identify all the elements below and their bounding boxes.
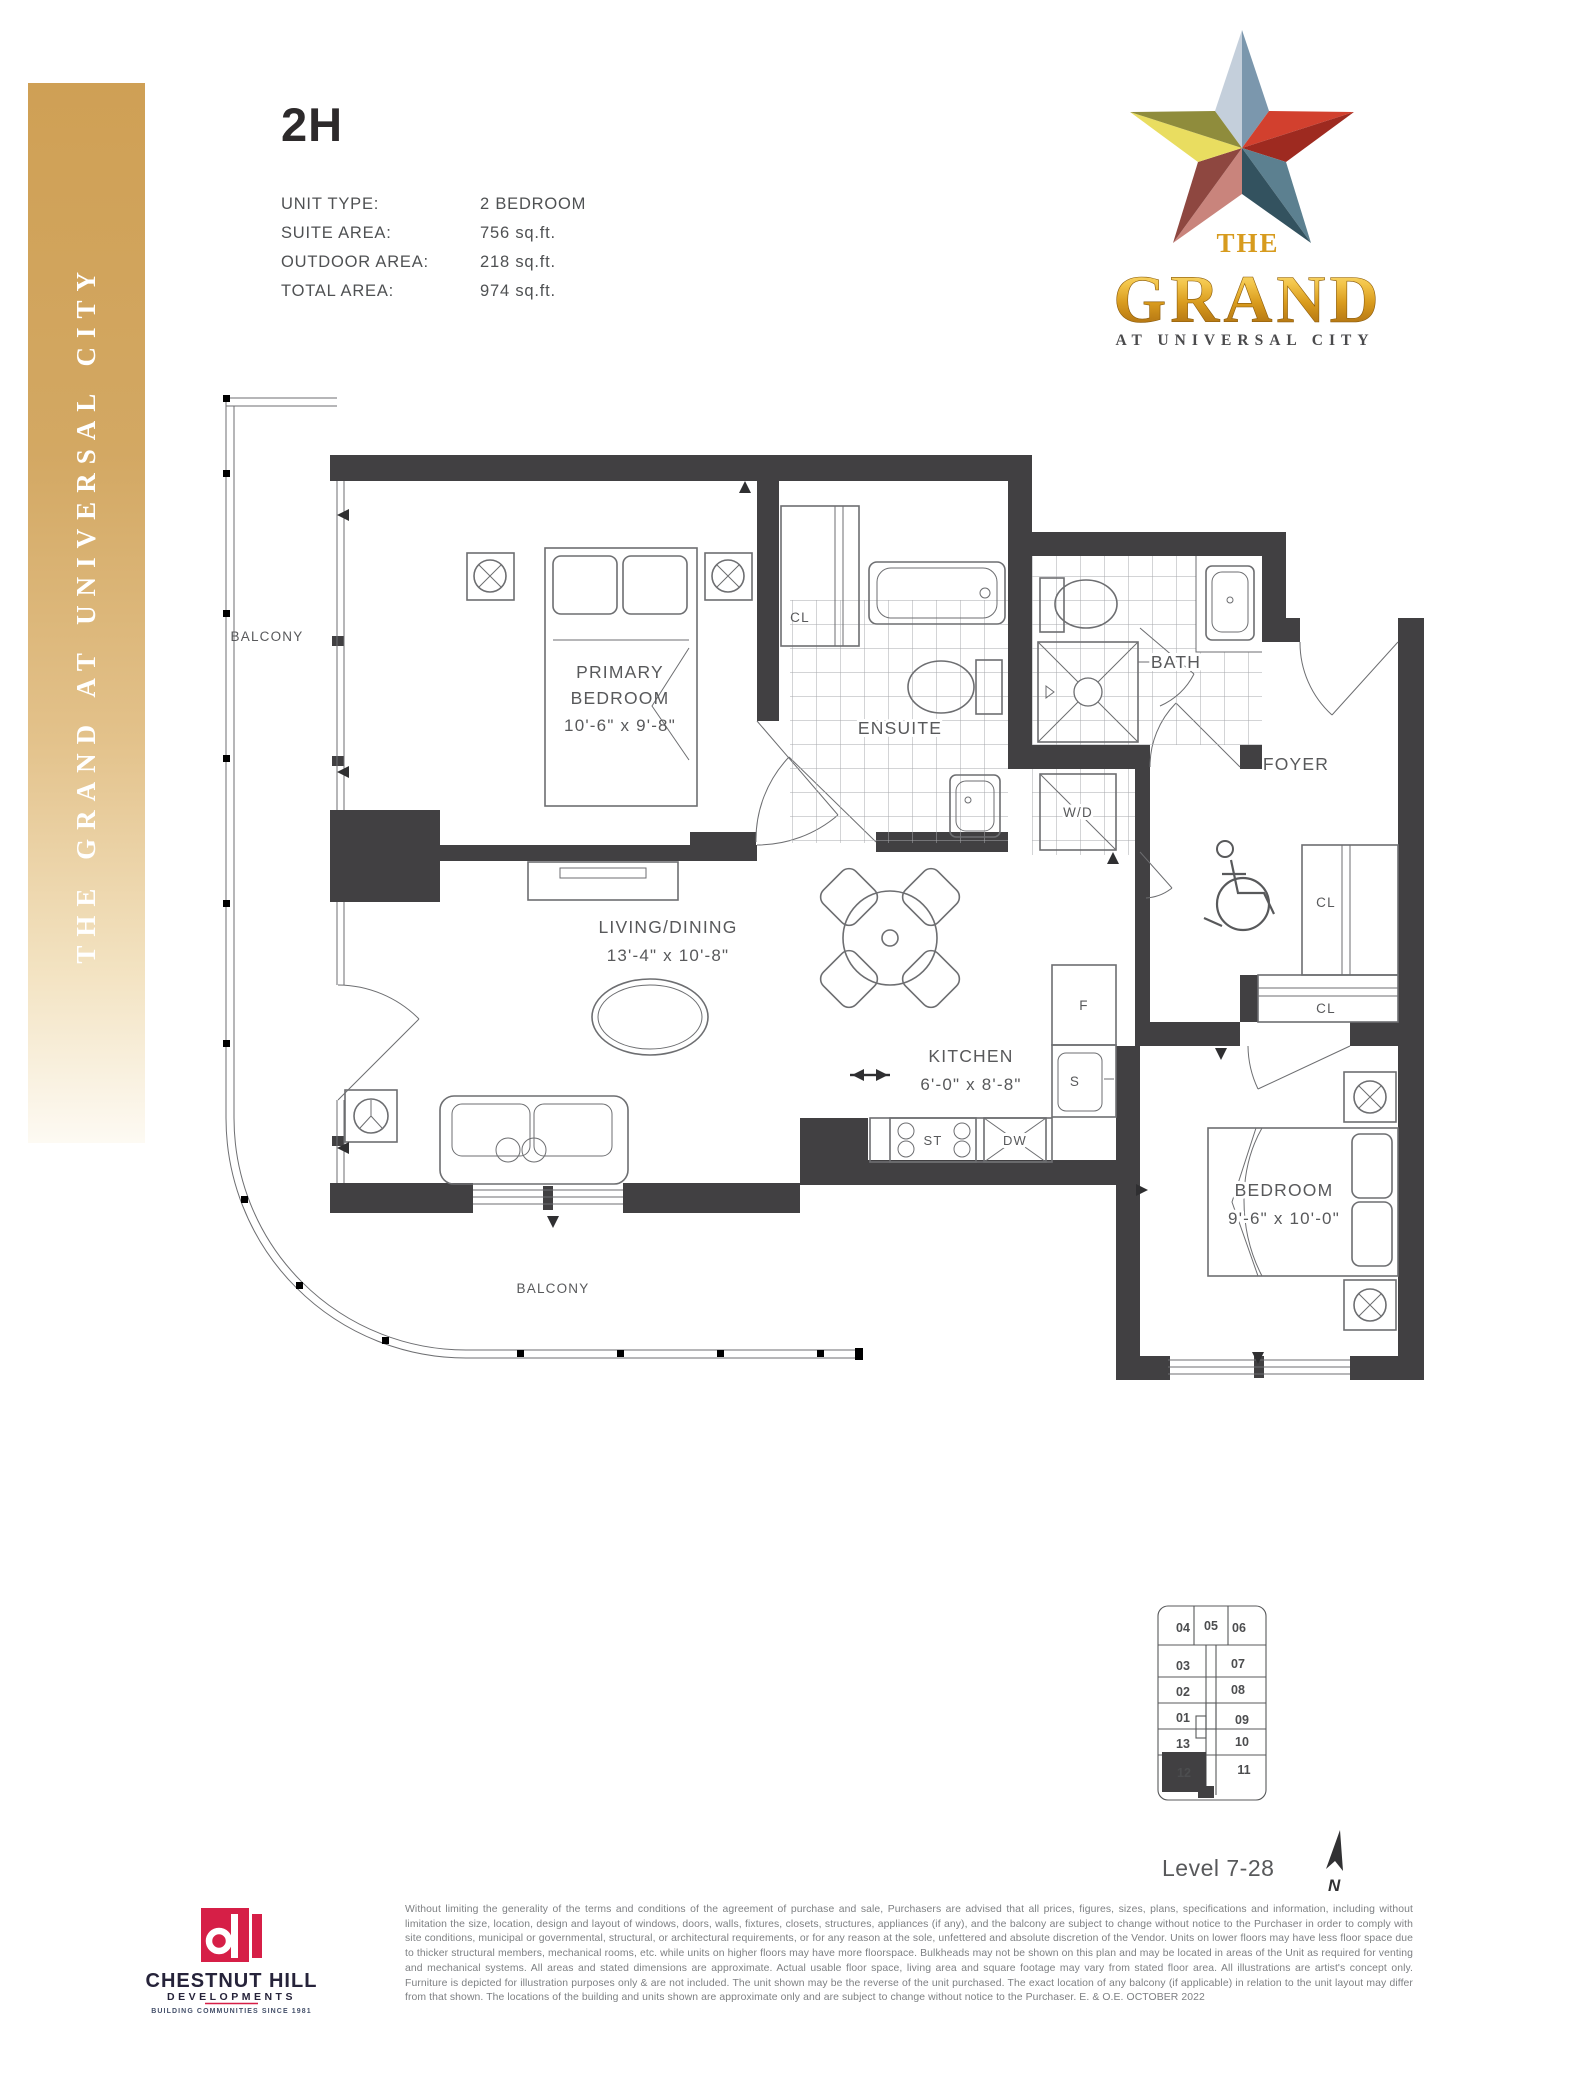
washer-dryer-label: W/D [1063,805,1093,820]
living-dining-dims: 13'-4" x 10'-8" [607,946,730,965]
kitchen-label: KITCHEN [928,1046,1013,1066]
keyplan-unit: 11 [1237,1763,1250,1777]
bath-label: BATH [1151,652,1201,672]
level-label: Level 7-28 [1162,1855,1274,1881]
primary-bedroom-label: PRIMARY [576,662,664,682]
keyplan-unit: 04 [1176,1621,1190,1635]
logo-grand: GRAND [1113,261,1382,337]
foyer-label: FOYER [1263,754,1329,774]
keyplan-unit: 05 [1204,1619,1218,1633]
star-logo-icon [1130,30,1354,243]
closet-label-2: CL [1316,895,1336,910]
developer-name: CHESTNUT HILL [139,1970,324,1993]
dishwasher-label: DW [1003,1133,1027,1148]
kitchen-dims: 6'-0" x 8'-8" [920,1075,1021,1094]
developer-tagline: BUILDING COMMUNITIES SINCE 1981 [124,2008,339,2015]
keyplan-unit: 01 [1176,1711,1190,1725]
bedroom2-furniture [1208,1072,1398,1330]
balcony-left-label: BALCONY [231,629,304,644]
primary-bedroom-dims: 10'-6" x 9'-8" [564,716,676,735]
ensuite-label: ENSUITE [858,718,942,738]
fridge-label: F [1079,998,1088,1013]
accessibility-icon [1204,841,1274,930]
keyplan-unit: 02 [1176,1685,1190,1699]
balcony-bottom-label: BALCONY [517,1281,590,1296]
plan-canvas: GRAND [0,0,1575,2100]
primary-bedroom-label2: BEDROOM [571,688,670,708]
foyer-closets [1258,845,1398,1022]
developer-division: DEVELOPMENTS [139,1991,324,2003]
closet-label-1: CL [790,610,810,625]
keyplan-unit: 09 [1235,1713,1249,1727]
bedroom2-label: BEDROOM [1235,1180,1334,1200]
keyplan-unit-highlighted: 12 [1177,1766,1191,1780]
keyplan-unit: 07 [1231,1657,1245,1671]
north-arrow-icon: N [1326,1830,1343,1895]
sink-label: S [1070,1074,1080,1089]
floorplan-page: THE GRAND AT UNIVERSAL CITY 2H UNIT TYPE… [0,0,1575,2100]
disclaimer-text: Without limiting the generality of the t… [405,1903,1413,2006]
keyplan-unit: 10 [1235,1735,1249,1749]
north-label: N [1328,1876,1341,1895]
keyplan-unit: 08 [1231,1683,1245,1697]
keyplan-unit: 06 [1232,1621,1246,1635]
stove-label: ST [923,1133,942,1148]
keyplan-unit: 03 [1176,1659,1190,1673]
keyplan: 04 05 06 03 07 02 08 01 09 13 10 12 11 L… [1158,1606,1343,1895]
bedroom2-dims: 9'-6" x 10'-0" [1228,1209,1340,1228]
closet-label-3: CL [1316,1001,1336,1016]
keyplan-unit: 13 [1176,1737,1190,1751]
living-dining-label: LIVING/DINING [598,917,737,937]
